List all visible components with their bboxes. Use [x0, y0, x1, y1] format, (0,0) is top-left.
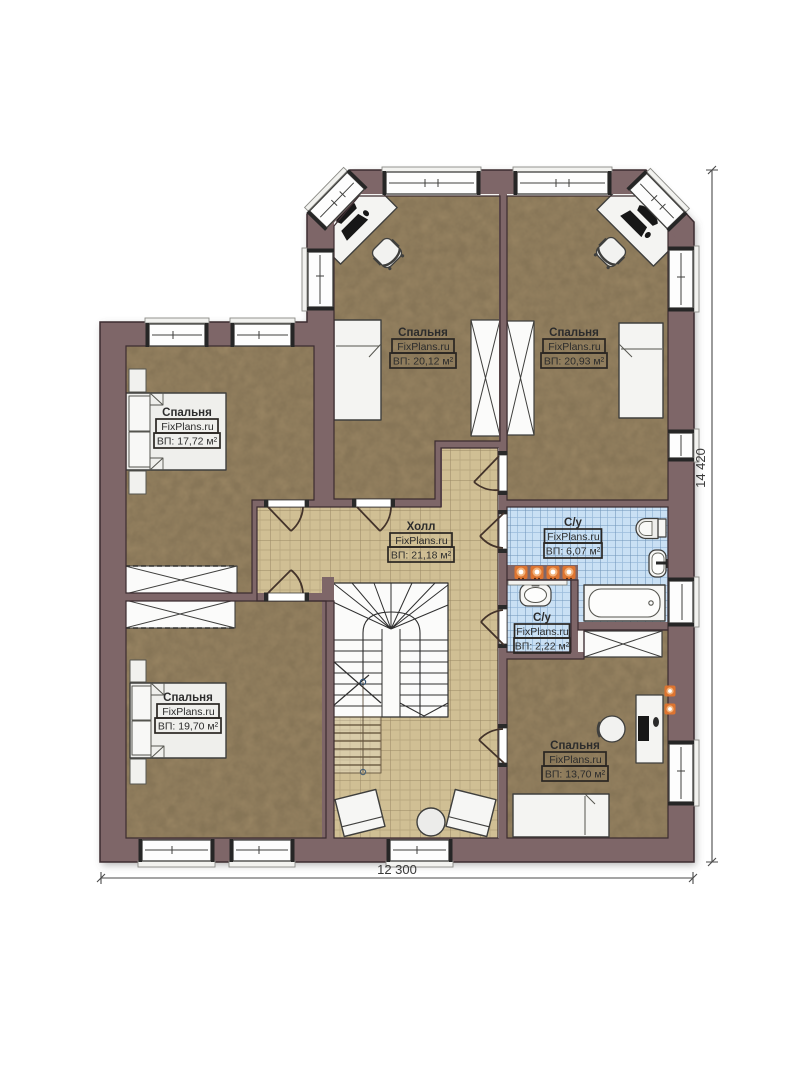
svg-text:С/у: С/у	[533, 612, 552, 624]
svg-text:FixPlans.ru: FixPlans.ru	[549, 754, 602, 766]
svg-text:FixPlans.ru: FixPlans.ru	[397, 341, 450, 353]
svg-text:ВП: 2,22 м²: ВП: 2,22 м²	[515, 641, 570, 653]
svg-text:Спальня: Спальня	[162, 407, 212, 419]
svg-text:ВП: 19,70 м²: ВП: 19,70 м²	[158, 721, 219, 733]
svg-text:ВП: 6,07 м²: ВП: 6,07 м²	[546, 546, 601, 558]
svg-text:Спальня: Спальня	[549, 327, 599, 339]
svg-text:FixPlans.ru: FixPlans.ru	[161, 421, 214, 433]
svg-text:Спальня: Спальня	[398, 327, 448, 339]
svg-text:FixPlans.ru: FixPlans.ru	[395, 535, 448, 547]
svg-text:Спальня: Спальня	[550, 740, 600, 752]
svg-text:ВП: 17,72 м²: ВП: 17,72 м²	[157, 436, 218, 448]
svg-text:ВП: 21,18 м²: ВП: 21,18 м²	[391, 550, 452, 562]
svg-text:Спальня: Спальня	[163, 692, 213, 704]
svg-text:12 300: 12 300	[377, 862, 417, 877]
svg-text:ВП: 13,70 м²: ВП: 13,70 м²	[545, 769, 606, 781]
svg-text:Холл: Холл	[407, 521, 436, 533]
svg-text:FixPlans.ru: FixPlans.ru	[162, 706, 215, 718]
svg-text:FixPlans.ru: FixPlans.ru	[516, 626, 569, 638]
svg-text:14 420: 14 420	[693, 448, 708, 488]
svg-text:ВП: 20,93 м²: ВП: 20,93 м²	[544, 356, 605, 368]
svg-text:ВП: 20,12 м²: ВП: 20,12 м²	[393, 356, 454, 368]
svg-text:С/у: С/у	[564, 517, 583, 529]
svg-text:FixPlans.ru: FixPlans.ru	[547, 531, 600, 543]
svg-text:FixPlans.ru: FixPlans.ru	[548, 341, 601, 353]
